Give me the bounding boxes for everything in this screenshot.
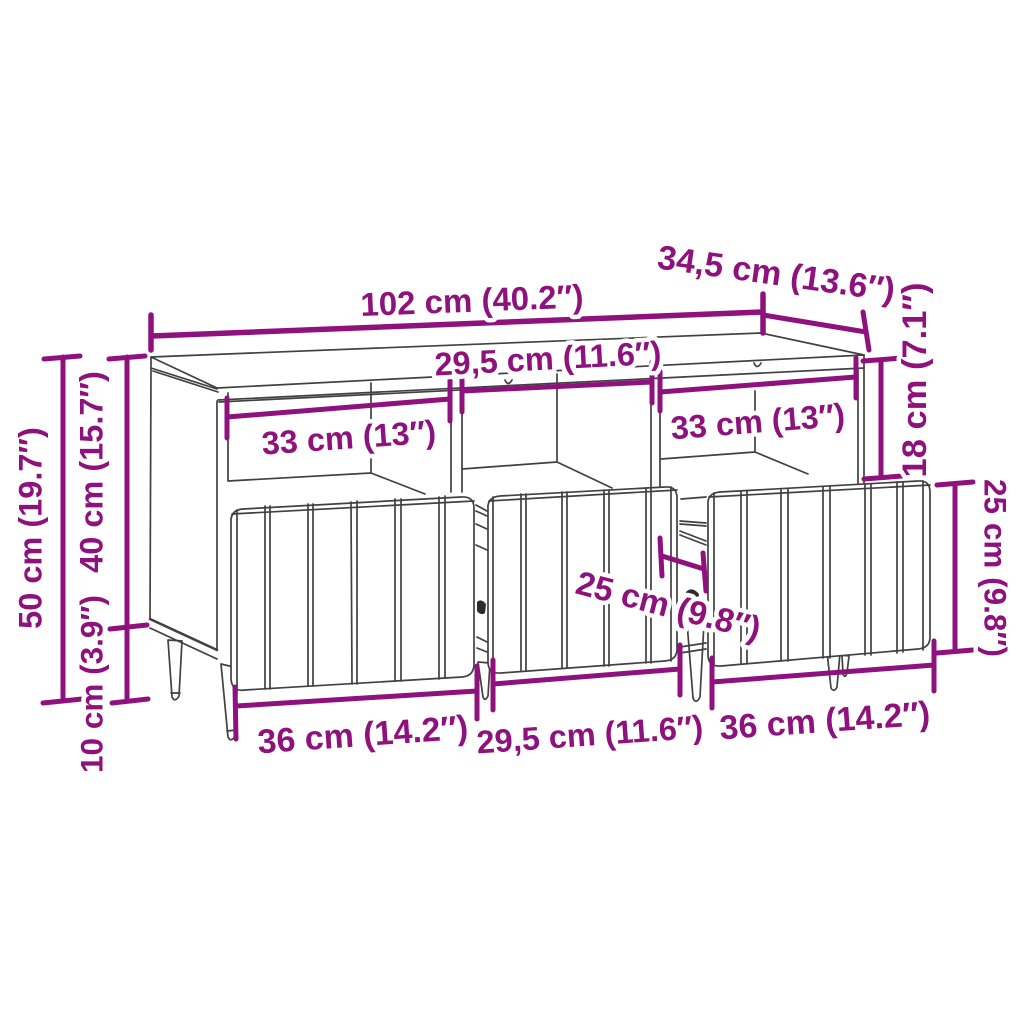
svg-text:40 cm (15.7″): 40 cm (15.7″) — [74, 371, 110, 573]
svg-text:50 cm (19.7″): 50 cm (19.7″) — [13, 427, 49, 629]
svg-text:25 cm (9.8″): 25 cm (9.8″) — [978, 479, 1014, 657]
svg-text:10 cm (3.9″): 10 cm (3.9″) — [73, 595, 109, 773]
svg-text:18 cm (7.1″): 18 cm (7.1″) — [896, 283, 934, 478]
